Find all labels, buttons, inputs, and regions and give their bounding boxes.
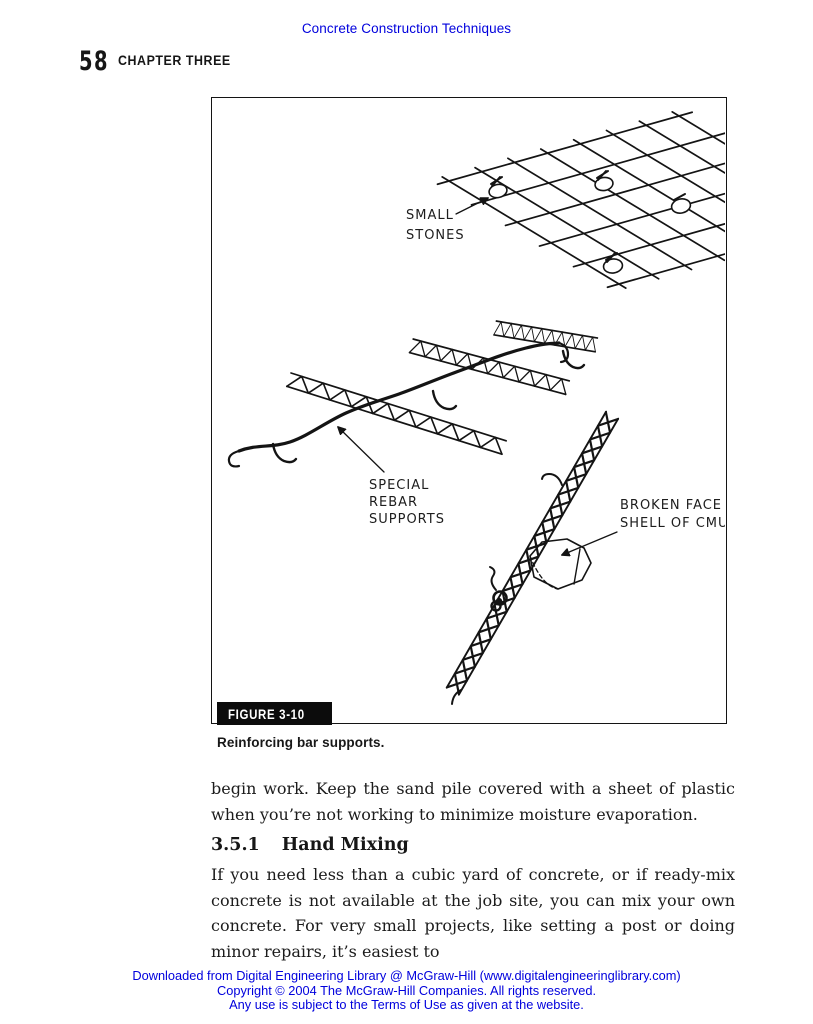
download-copyright-footer: Downloaded from Digital Engineering Libr… <box>0 969 813 1013</box>
wavy-rebar <box>229 343 584 466</box>
special-rebar-supports-leader-arrow <box>338 427 384 472</box>
special-rebar-supports-label-line1: SPECIAL <box>369 478 429 493</box>
broken-face-shell-label-line1: BROKEN FACE <box>620 498 722 513</box>
section-number: 3.5.1 <box>211 835 260 855</box>
footer-copyright-line: Copyright © 2004 The McGraw-Hill Compani… <box>0 984 813 999</box>
section-heading: 3.5.1Hand Mixing <box>211 835 409 855</box>
page-number: 58 <box>79 46 109 77</box>
diagonal-truss <box>447 412 618 704</box>
special-rebar-supports-label: SPECIAL REBAR SUPPORTS <box>338 427 445 527</box>
rebar-support-trusses <box>287 321 598 454</box>
paragraph-hand-mixing: If you need less than a cubic yard of co… <box>211 862 735 964</box>
figure-number-label: FIGURE 3-10 <box>228 706 305 722</box>
small-stones-leader-arrow <box>456 198 488 214</box>
small-stones-label: SMALL STONES <box>406 198 488 243</box>
special-rebar-supports-label-line3: SUPPORTS <box>369 512 445 527</box>
small-stones-label-line1: SMALL <box>406 208 454 223</box>
reinforcing-bar-supports-illustration: SMALL STONES SPECIAL REBAR SUPPORTS <box>212 98 725 722</box>
figure-number-banner: FIGURE 3-10 <box>217 702 332 725</box>
running-head: Concrete Construction Techniques <box>0 21 813 36</box>
figure-3-10-frame: SMALL STONES SPECIAL REBAR SUPPORTS <box>211 97 727 724</box>
footer-download-line: Downloaded from Digital Engineering Libr… <box>0 969 813 984</box>
footer-terms-line: Any use is subject to the Terms of Use a… <box>0 998 813 1013</box>
figure-caption: Reinforcing bar supports. <box>217 735 385 750</box>
broken-face-shell-label-line2: SHELL OF CMU <box>620 516 725 531</box>
broken-face-shell-label: BROKEN FACE SHELL OF CMU <box>562 498 725 555</box>
special-rebar-supports-label-line2: REBAR <box>369 495 418 510</box>
section-title: Hand Mixing <box>282 835 409 855</box>
paragraph-sand-pile: begin work. Keep the sand pile covered w… <box>211 776 735 827</box>
small-stones-label-line2: STONES <box>406 228 465 243</box>
chapter-label: CHAPTER THREE <box>118 53 231 68</box>
